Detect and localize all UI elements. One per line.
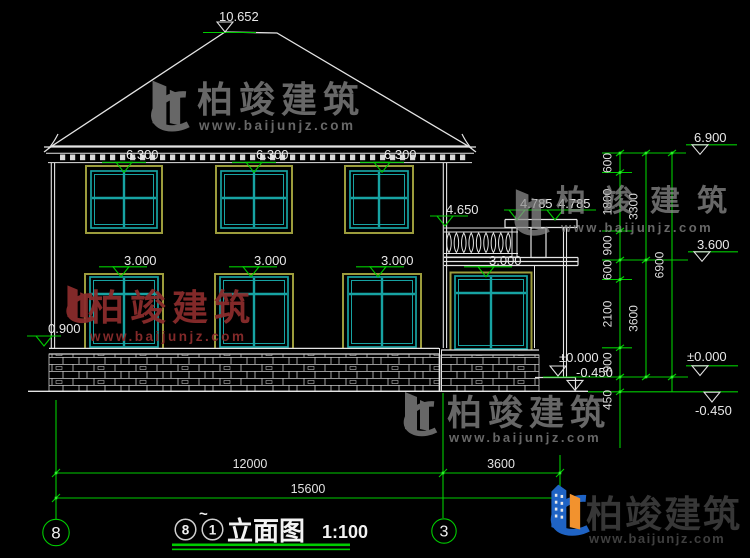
brand-name-text: 柏竣建筑 bbox=[586, 493, 742, 535]
second-floor-windows bbox=[86, 166, 413, 233]
watermark-brand-text: 柏竣建筑 bbox=[447, 393, 611, 433]
floor-elevation-4: 3.000 bbox=[489, 253, 522, 268]
watermark-brand-text: 柏竣建筑 bbox=[556, 184, 744, 218]
watermark-logo-icon bbox=[405, 392, 436, 434]
chain-seg-900a: 900 bbox=[601, 235, 615, 255]
eave-elevation-1: 6.300 bbox=[126, 147, 159, 162]
horizontal-dimension-labels: 12000 3600 15600 bbox=[233, 457, 515, 496]
chain-seg-2100: 2100 bbox=[601, 300, 615, 327]
floor-elevation-3: 3.000 bbox=[381, 253, 414, 268]
title-underline-thick bbox=[172, 544, 350, 547]
watermark-url-text: www.baijunjz.com bbox=[89, 329, 247, 344]
right-elevation-minus: -0.450 bbox=[695, 403, 732, 418]
balcony-elevation: 4.650 bbox=[446, 202, 479, 217]
axis-bubble-3: 3 bbox=[440, 524, 449, 541]
window-2f-3 bbox=[345, 166, 413, 233]
ridge-elevation: 10.652 bbox=[219, 9, 259, 24]
stone-base bbox=[28, 348, 588, 391]
balustrade bbox=[447, 233, 511, 253]
dim-15600: 15600 bbox=[291, 482, 326, 496]
title-block: 8 ~ 1 立面图 1:100 bbox=[172, 506, 368, 550]
watermark-roof: 柏竣建筑 www.baijunjz.com bbox=[153, 79, 365, 133]
watermark-url-text: www.baijunjz.com bbox=[448, 430, 601, 445]
brand-url-text: www.baijunjz.com bbox=[588, 531, 725, 546]
dim-12000: 12000 bbox=[233, 457, 268, 471]
watermark-logo-icon bbox=[153, 81, 189, 129]
axis-bubble-8: 8 bbox=[51, 524, 60, 543]
chain-sub-3600: 3600 bbox=[627, 305, 641, 332]
watermark-left-red: 柏竣建筑 www.baijunjz.com bbox=[67, 285, 256, 344]
chain-seg-600a: 600 bbox=[601, 153, 615, 173]
right-elevation-top: 6.900 bbox=[694, 130, 727, 145]
title-axis-to: 1 bbox=[209, 523, 217, 538]
drawing-scale: 1:100 bbox=[322, 522, 368, 542]
zero-elevation-building: ±0.000 bbox=[559, 350, 599, 365]
dimension-lines bbox=[27, 33, 738, 520]
cad-elevation-canvas: 10.652 6.300 6.300 6.300 3.000 3.000 3.0… bbox=[0, 0, 750, 558]
title-underline-thin bbox=[172, 549, 350, 551]
eave-elevation-3: 6.300 bbox=[384, 147, 417, 162]
watermark-brand-text: 柏竣建筑 bbox=[88, 287, 256, 328]
porch-structure bbox=[444, 220, 578, 378]
right-elevation-mid: 3.600 bbox=[697, 237, 730, 252]
brand-logo-icon bbox=[551, 485, 588, 533]
chain-seg-600b: 600 bbox=[601, 260, 615, 280]
window-2f-2 bbox=[216, 166, 292, 233]
drawing-title: 立面图 bbox=[227, 516, 305, 546]
title-axis-from: 8 bbox=[182, 523, 190, 538]
right-elevation-zero: ±0.000 bbox=[687, 349, 727, 364]
watermark-bottom: 柏竣建筑 www.baijunjz.com bbox=[405, 392, 611, 445]
sill-elevation: 0.900 bbox=[48, 321, 81, 336]
window-1f-porch bbox=[451, 273, 532, 351]
floor-elevation-2: 3.000 bbox=[254, 253, 287, 268]
floor-elevation-1: 3.000 bbox=[124, 253, 157, 268]
chain-seg-900b: 900 bbox=[601, 352, 615, 372]
watermark-brand-text: 柏竣建筑 bbox=[197, 79, 365, 120]
chain-total-6900: 6900 bbox=[653, 251, 667, 278]
elevation-drawing: 10.652 6.300 6.300 6.300 3.000 3.000 3.0… bbox=[0, 0, 750, 558]
window-1f-3 bbox=[343, 274, 421, 348]
watermark-url-text: www.baijunjz.com bbox=[198, 118, 356, 133]
brand-logo: 柏竣建筑 www.baijunjz.com bbox=[551, 485, 742, 546]
watermark-url-text: www.baijunjz.com bbox=[560, 220, 713, 235]
eave-elevation-2: 6.300 bbox=[256, 147, 289, 162]
dim-3600: 3600 bbox=[487, 457, 515, 471]
window-2f-1 bbox=[86, 166, 162, 233]
